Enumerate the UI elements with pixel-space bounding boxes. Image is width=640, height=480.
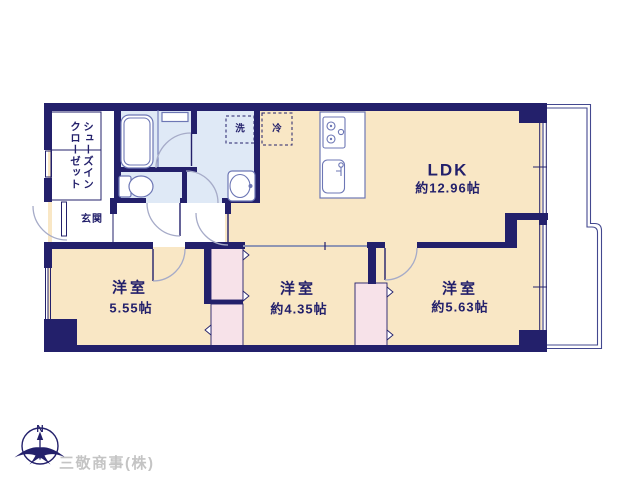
toilet-icon (119, 176, 153, 197)
closet-middle-room (211, 248, 243, 300)
wall-hall-top (114, 198, 146, 203)
bedroom-right-size: 約5.63帖 (431, 301, 488, 314)
wall-corner-bottom-right (519, 330, 547, 352)
wall-corner-top-right (519, 103, 547, 123)
kitchen-counter (320, 112, 365, 198)
compass-north-label: N (36, 425, 43, 435)
wall-bedroom-left-right (204, 243, 211, 304)
wall-hall-ldk (225, 203, 231, 214)
company-name: 三敬商事(株) (59, 452, 155, 473)
closet-left-room (211, 304, 243, 347)
wall-ldk-bedroom (417, 242, 507, 248)
wall-mid-right-bedroom (368, 248, 376, 284)
bedroom-middle-label: 洋室 (280, 282, 316, 297)
wall-top (44, 103, 519, 111)
refrigerator-label: 冷 (272, 124, 282, 134)
wall-entrance-step (110, 198, 117, 214)
bedroom-left-label: 洋室 (112, 281, 148, 296)
entrance-label: 玄関 (81, 215, 103, 225)
washbasin-icon (228, 171, 255, 201)
bath-shelf-icon (162, 113, 188, 122)
floor-hallway (114, 203, 225, 247)
wall-bottom (44, 345, 520, 352)
closet-right-room (355, 283, 387, 347)
ldk-label: LDK (428, 162, 469, 179)
ldk-size: 約12.96帖 (415, 182, 481, 195)
balcony (547, 105, 602, 349)
shoe-closet-label: シューズイン クローゼット (64, 121, 94, 195)
bedroom-left-size: 5.55帖 (109, 302, 152, 315)
floor-plan-drawing (0, 0, 640, 480)
bedroom-right-label: 洋室 (442, 282, 478, 297)
wall-left (44, 249, 52, 268)
floor-plan-page: LDK 約12.96帖 洋室 5.55帖 洋室 約4.35帖 洋室 約5.63帖… (0, 0, 640, 480)
wall-ldk-bedroom (367, 242, 385, 248)
bathtub-icon (121, 115, 153, 168)
wall-ldk-bedroom-step (505, 213, 517, 248)
wall-hall-south (44, 242, 153, 249)
bedroom-middle-size: 約4.35帖 (270, 303, 327, 316)
washer-label: 洗 (235, 124, 245, 134)
closet-divider-wall (211, 300, 243, 304)
wall-bath-right (191, 110, 197, 134)
